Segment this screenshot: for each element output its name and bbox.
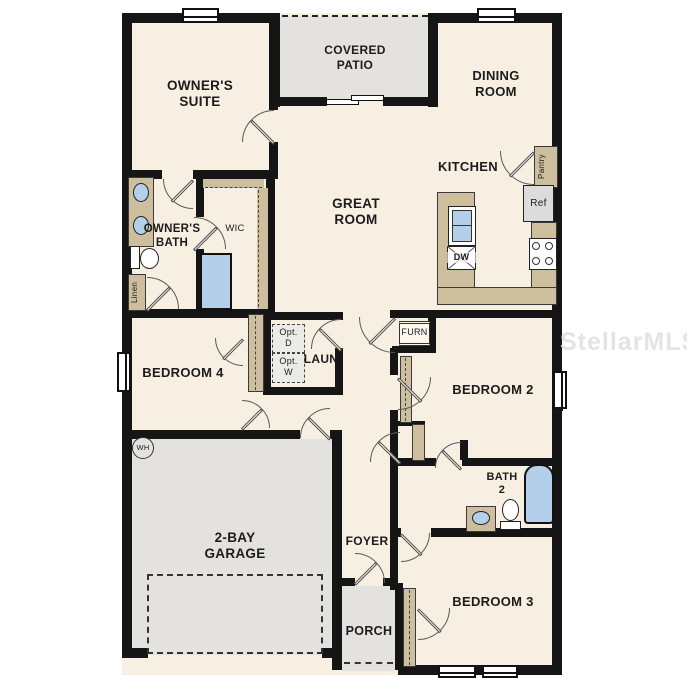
wall (460, 440, 468, 460)
wall (383, 97, 438, 106)
garage-door-dashed (147, 574, 323, 654)
wall (390, 310, 562, 318)
stellar-mls-watermark: StellarMLS (560, 328, 687, 357)
room-label-porch: PORCH (339, 624, 399, 639)
wall (263, 312, 271, 395)
bath-sink (472, 511, 490, 525)
wall (263, 387, 343, 395)
room-label-wic: WIC (219, 223, 251, 235)
wall (431, 528, 562, 537)
wall (392, 346, 436, 353)
furnace-label: FURN (399, 327, 430, 338)
room-label-laundry: LAUN (300, 352, 342, 367)
wall (398, 665, 562, 675)
room-label-owners-bath: OWNER'S BATH (127, 222, 217, 250)
wall (263, 312, 343, 320)
wall (428, 13, 438, 107)
kitchen-sink-basin (452, 210, 472, 242)
hall-closet (412, 424, 425, 461)
burner (545, 242, 553, 250)
kitchen-counter (437, 287, 557, 305)
bedroom4-closet (248, 314, 264, 392)
burner (532, 257, 540, 265)
shower (200, 253, 232, 310)
floor-plan: DW Ref WH Opt. D Opt. W FURN (0, 0, 687, 687)
window (477, 8, 516, 23)
room-label-owners-suite: OWNER'S SUITE (130, 78, 270, 111)
bathtub (524, 464, 554, 524)
kitchen-sink-divider (452, 225, 472, 226)
burner (545, 257, 553, 265)
linen-label: Linen (130, 276, 144, 309)
bath-sink (133, 183, 149, 202)
room-label-covered-patio: COVERED PATIO (300, 43, 410, 72)
wall (122, 648, 148, 658)
refrigerator-label: Ref (523, 198, 554, 210)
water-heater-label: WH (132, 443, 154, 452)
wic-rod-dashed (258, 190, 259, 307)
room-label-bath2: BATH 2 (482, 471, 522, 498)
closet-rod-dashed (255, 316, 256, 390)
room-label-bedroom4: BEDROOM 4 (128, 365, 238, 381)
window (438, 665, 476, 678)
room-label-bedroom3: BEDROOM 3 (433, 594, 553, 610)
toilet-tank (500, 521, 521, 530)
opt-dryer-label: Opt. D (272, 327, 305, 349)
dishwasher-label: DW (447, 252, 476, 263)
wall (269, 23, 278, 110)
pantry-label: Pantry (537, 150, 555, 184)
room-label-bedroom2: BEDROOM 2 (433, 382, 553, 398)
window (482, 665, 518, 678)
wall (193, 170, 278, 179)
sliding-door-panel (351, 95, 384, 101)
wall (390, 463, 398, 590)
room-label-garage: 2-BAY GARAGE (180, 530, 290, 563)
wall (342, 578, 355, 586)
toilet-bowl (502, 499, 519, 521)
room-label-dining-room: DINING ROOM (446, 68, 546, 100)
window (182, 8, 219, 23)
wall (330, 430, 342, 439)
wic-rod-dashed (205, 187, 262, 188)
window (553, 371, 567, 409)
patio-roof-dashed-line (282, 15, 428, 17)
room-label-great-room: GREAT ROOM (306, 196, 406, 229)
porch-edge-dashed (344, 662, 393, 664)
toilet-bowl (140, 248, 159, 269)
room-label-foyer: FOYER (337, 534, 397, 549)
room-label-kitchen: KITCHEN (418, 159, 518, 175)
burner (532, 242, 540, 250)
closet-rod-dashed (409, 590, 410, 665)
wall (280, 97, 327, 106)
